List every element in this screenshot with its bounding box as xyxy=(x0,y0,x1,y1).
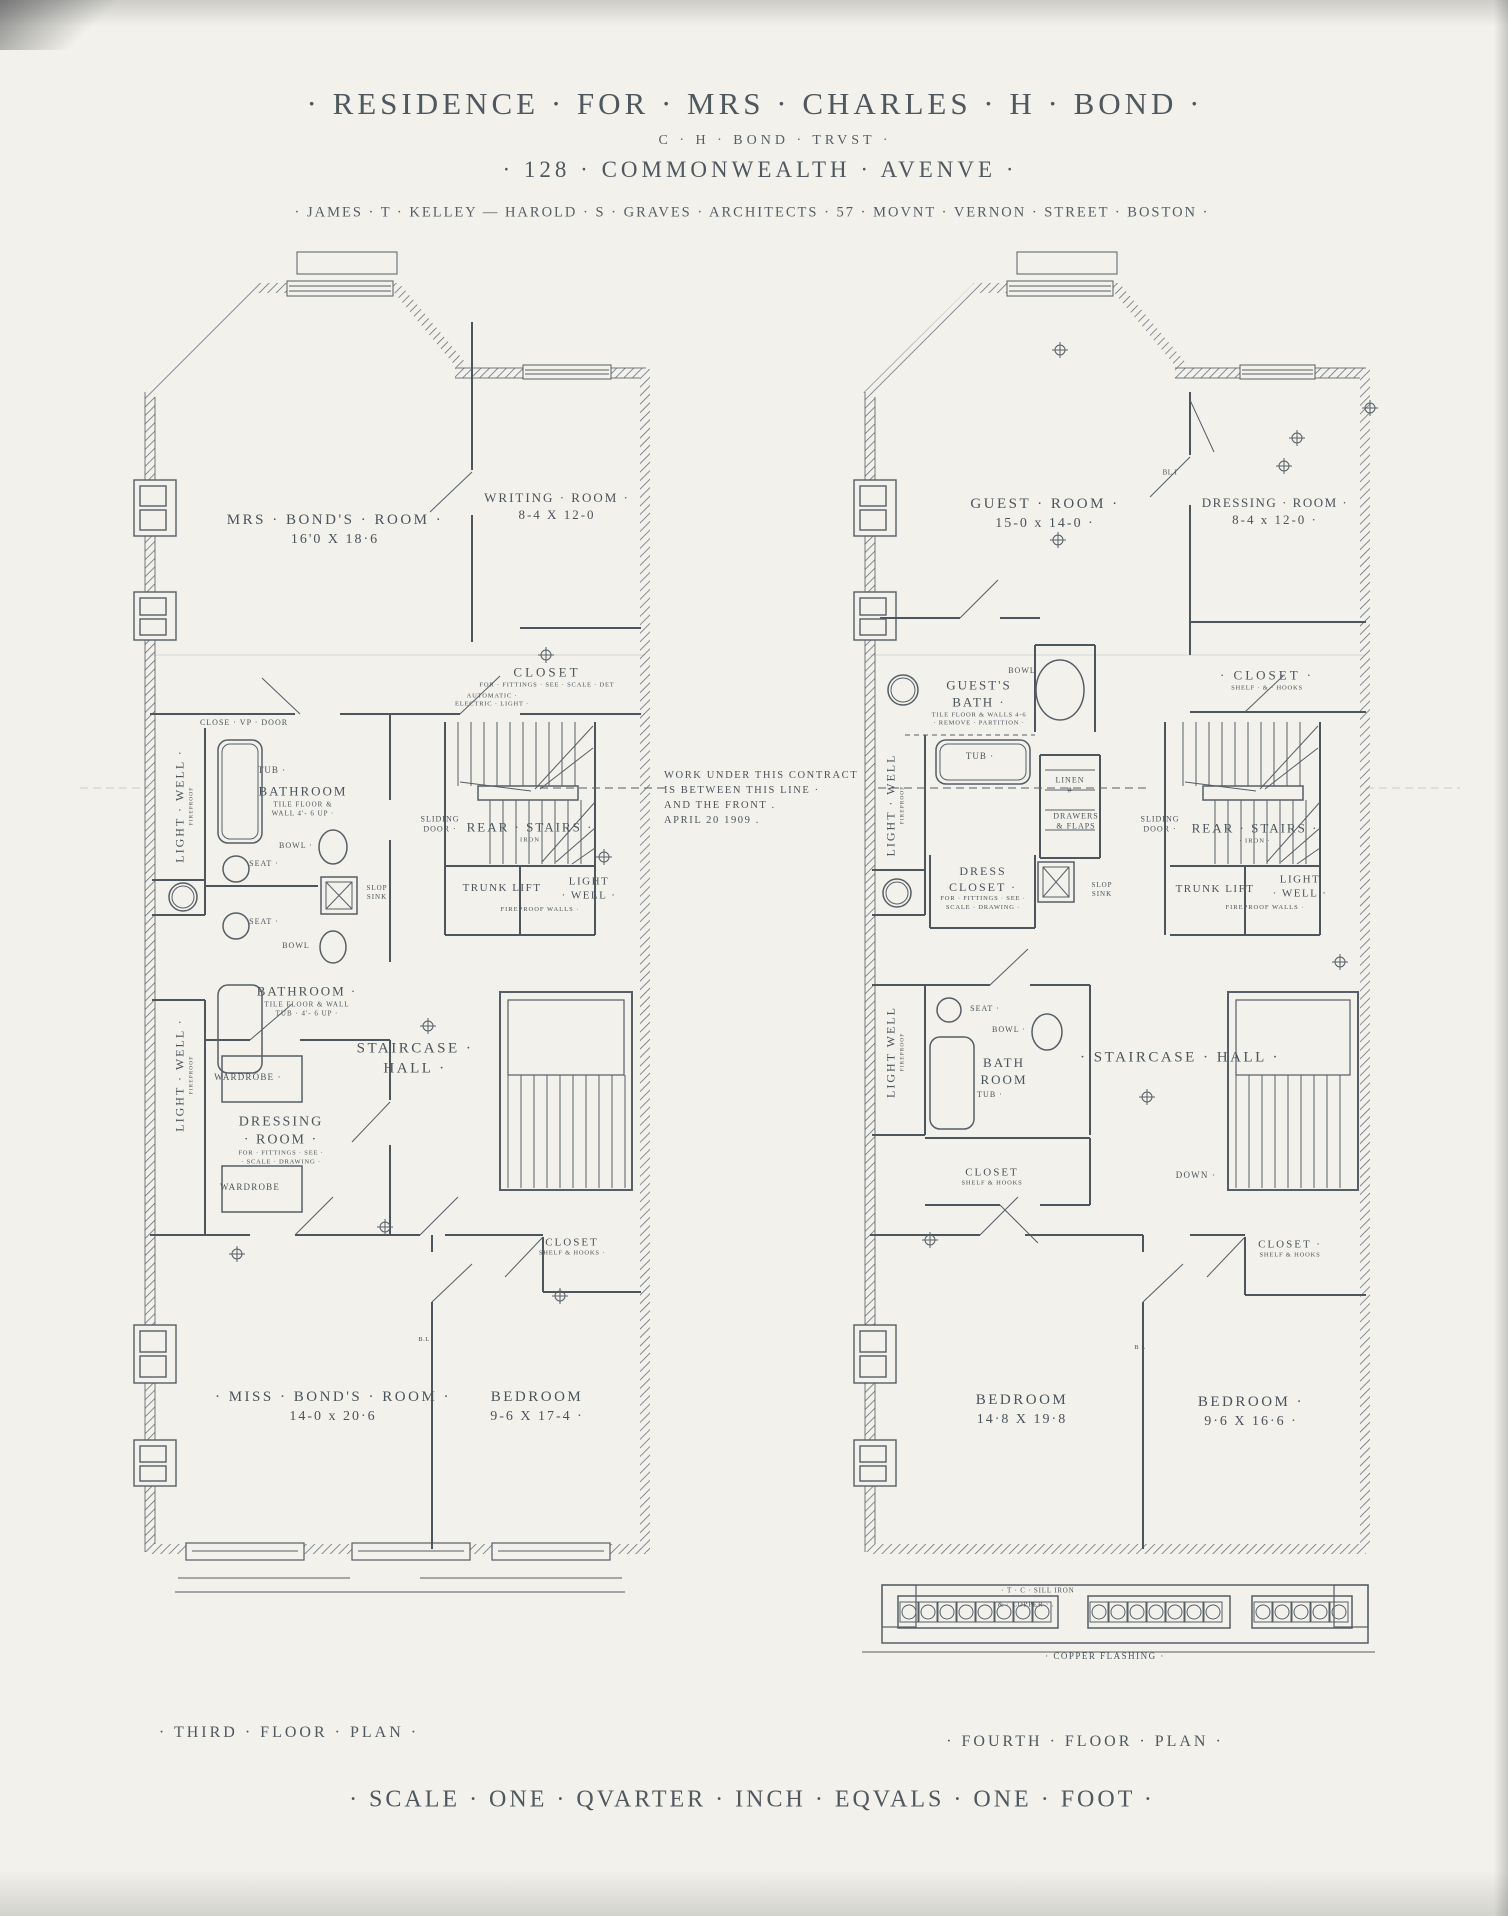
plan-label: SLIDINGDOOR · xyxy=(1141,815,1180,836)
sheet-architects: · JAMES · T · KELLEY — HAROLD · S · GRAV… xyxy=(295,205,1210,222)
plan-label: LIGHT · WELL ·FIREPROOF xyxy=(173,749,196,862)
bowl-fixture xyxy=(1036,660,1084,720)
bowl-fixture xyxy=(320,931,346,963)
contract-note-line: APRIL 20 1909 . xyxy=(664,813,904,828)
plan-label: TUB · xyxy=(258,765,286,777)
plan-label: BOWL xyxy=(282,941,310,951)
plan-label: DRESSING · ROOM ·8-4 x 12-0 · xyxy=(1202,495,1348,529)
plan-label: DOWN · xyxy=(1176,1170,1216,1182)
floor-plan-linework xyxy=(0,0,1508,1916)
plan-label: BEDROOM14·8 X 19·8 xyxy=(976,1391,1069,1429)
plan-label: AUTOMATIC ·ELECTRIC · LIGHT · xyxy=(455,693,529,710)
plan-label: B L xyxy=(1134,1344,1145,1352)
plan-label: · STAIRCASE · HALL · xyxy=(1080,1048,1280,1068)
contract-note: WORK UNDER THIS CONTRACTIS BETWEEN THIS … xyxy=(664,768,904,828)
plan-label: SLOPSINK xyxy=(1091,881,1112,899)
plan-label: DRAWERS& FLAPS xyxy=(1053,812,1098,833)
plan-label: CLOSETFOR · FITTINGS · SEE · SCALE · DET xyxy=(479,664,614,689)
plan-label: FIREPROOF WALLS · xyxy=(1225,904,1304,912)
plan-label: DRESSING· ROOM ·FOR · FITTINGS · SEE ·· … xyxy=(238,1113,323,1166)
plan-label: TUB · xyxy=(966,751,994,763)
third-floor-caption: · THIRD · FLOOR · PLAN · xyxy=(159,1724,419,1742)
plan-label: REAR · STAIRS ·· IRON · xyxy=(1192,820,1319,845)
plan-label: WRITING · ROOM ·8-4 X 12-0 xyxy=(484,490,630,524)
plan-label: GUEST · ROOM ·15-0 x 14-0 · xyxy=(970,495,1119,533)
plan-label: BOWL · xyxy=(279,841,313,851)
contract-note-line: AND THE FRONT . xyxy=(664,798,904,813)
plan-label: LIGHT · WELL ·FIREPROOF xyxy=(173,1018,196,1131)
plan-label: · MISS · BOND'S · ROOM ·14-0 x 20·6 xyxy=(215,1388,451,1426)
seat-fixture xyxy=(223,856,249,882)
fourth-plan-wall-edges xyxy=(865,368,1366,1552)
tub-fixture xyxy=(218,985,262,1073)
fourth-main-stair xyxy=(1228,992,1358,1190)
plan-label: TUB · xyxy=(977,1090,1003,1100)
basin-fixture xyxy=(888,675,918,705)
plan-label: MRS · BOND'S · ROOM ·16'0 X 18·6 xyxy=(227,511,443,549)
plan-label: GUEST'SBATH ·TILE FLOOR & WALLS 4-6· REM… xyxy=(932,678,1027,729)
seat-fixture xyxy=(937,998,961,1022)
sheet-address: · 128 · COMMONWEALTH · AVENVE · xyxy=(503,157,1018,183)
plan-label: CLOSE · VP · DOOR xyxy=(200,718,288,728)
light-well-shaft xyxy=(883,879,911,907)
scale-note: · SCALE · ONE · QVARTER · INCH · EQVALS … xyxy=(349,1787,1155,1814)
plan-label: BATHROOMTILE FLOOR &WALL 4'- 6 UP · xyxy=(259,783,348,818)
bowl-fixture xyxy=(1032,1014,1062,1050)
plan-label: CLOSETSHELF & HOOKS · xyxy=(539,1236,605,1259)
plan-label: SEAT · xyxy=(249,859,279,869)
fourth-floor-caption: · FOURTH · FLOOR · PLAN · xyxy=(946,1733,1224,1751)
plan-label: BEDROOM ·9·6 X 16·6 · xyxy=(1198,1393,1304,1431)
seat-fixture xyxy=(223,913,249,939)
fourth-plan-partitions xyxy=(870,392,1366,1549)
third-main-stair xyxy=(500,992,632,1190)
plan-label: WARDROBE xyxy=(220,1182,280,1194)
plan-label: STAIRCASE ·HALL · xyxy=(357,1040,474,1079)
plan-label: BL I xyxy=(1163,468,1178,477)
plan-label: · T · C · SILL IRON xyxy=(1001,1586,1074,1595)
sheet-subtitle-trust: C · H · BOND · TRVST · xyxy=(659,133,892,149)
plan-label: DRESSCLOSET ·FOR · FITTINGS · SEE ·SCALE… xyxy=(940,864,1025,912)
contract-note-line: IS BETWEEN THIS LINE · xyxy=(664,783,904,798)
plan-label: · COPPER FLASHING · xyxy=(1045,1651,1165,1663)
plan-label: LINEN# xyxy=(1056,776,1085,797)
plan-label: BATHROOM ·TILE FLOOR & WALLTUB · 4'- 6 U… xyxy=(257,983,358,1018)
plan-label: & · COPPER · . xyxy=(998,1600,1055,1609)
sheet-title: · RESIDENCE · FOR · MRS · CHARLES · H · … xyxy=(306,86,1203,122)
plan-label: TRUNK LIFT xyxy=(1176,882,1255,896)
plan-label: SEAT · xyxy=(970,1004,1000,1014)
plan-label: WARDROBE · xyxy=(214,1072,282,1084)
bowl-fixture xyxy=(319,830,347,864)
plan-label: SLOPSINK xyxy=(366,884,387,902)
plan-label: LIGHT WELLFIREPROOF xyxy=(884,1006,907,1098)
plan-label: SEAT · xyxy=(249,917,279,927)
tub-fixture xyxy=(218,740,262,843)
contract-note-line: WORK UNDER THIS CONTRACT xyxy=(664,768,904,783)
fourth-balcony xyxy=(862,1585,1375,1652)
plan-label: CLOSET ·SHELF & HOOKS xyxy=(1258,1238,1322,1261)
fourth-plan-walls xyxy=(867,287,1366,1552)
drawing-sheet: · RESIDENCE · FOR · MRS · CHARLES · H · … xyxy=(0,0,1508,1916)
plan-label: BATHROOM xyxy=(980,1055,1027,1089)
plan-label: BEDROOM9-6 X 17-4 · xyxy=(490,1388,584,1426)
plan-label: REAR · STAIRS ·IRON xyxy=(467,819,594,844)
light-well-shaft xyxy=(169,883,197,911)
plan-label: SLIDINGDOOR · xyxy=(421,815,460,836)
plan-label: LIGHT· WELL · xyxy=(1273,873,1328,902)
plan-label: B.L xyxy=(418,1336,429,1344)
plan-label: CLOSETSHELF & HOOKS xyxy=(962,1166,1023,1189)
third-plan-walls xyxy=(147,287,646,1552)
plan-label: · CLOSET ·SHELF · & · HOOKS xyxy=(1220,667,1314,692)
plan-label: BOWL · xyxy=(992,1025,1026,1035)
plan-label: TRUNK LIFT xyxy=(463,881,542,895)
plan-label: LIGHT· WELL · xyxy=(562,875,617,904)
plan-label: BOWL xyxy=(1008,666,1036,676)
plan-label: LIGHT · WELLFIREPROOF xyxy=(884,754,907,857)
plan-label: FIREPROOF WALLS · xyxy=(500,906,579,914)
tub-fixture xyxy=(930,1037,974,1129)
